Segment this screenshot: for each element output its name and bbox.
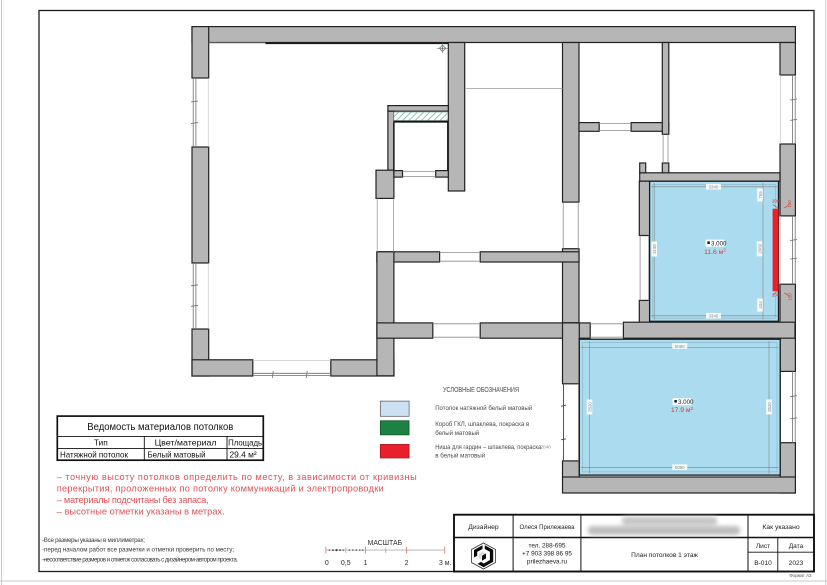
svg-text:3340: 3340	[709, 185, 719, 190]
svg-text:УСЛОВНЫЕ ОБОЗНАЧЕНИЯ: УСЛОВНЫЕ ОБОЗНАЧЕНИЯ	[443, 387, 519, 394]
svg-text:3520: 3520	[767, 402, 772, 412]
svg-text:Цвет/материал: Цвет/материал	[155, 438, 217, 448]
svg-text:Площадь: Площадь	[228, 438, 263, 448]
svg-text:200: 200	[772, 199, 780, 204]
svg-text:Потолок натяжной белый матовый: Потолок натяжной белый матовый	[435, 404, 532, 412]
svg-text:Лист: Лист	[756, 543, 770, 550]
svg-text:3340: 3340	[709, 314, 719, 319]
svg-text:-несоответствие размеров и отм: -несоответствие размеров и отметок согла…	[42, 556, 238, 563]
svg-text:2060: 2060	[757, 243, 762, 253]
svg-text:Тип: Тип	[94, 438, 108, 448]
svg-text:+7 903 398 86 95: +7 903 398 86 95	[522, 551, 572, 558]
svg-text:5090: 5090	[675, 344, 685, 349]
svg-text:– материалы подсчитаны без зап: – материалы подсчитаны без запаса,	[57, 495, 209, 505]
svg-text:434: 434	[758, 301, 763, 309]
svg-text:тел. 288-695: тел. 288-695	[529, 543, 566, 550]
svg-text:Как указано: Как указано	[762, 524, 799, 531]
svg-text:План потолков 1 этаж: План потолков 1 этаж	[631, 552, 698, 559]
svg-text:150: 150	[787, 200, 792, 208]
svg-text:0,5: 0,5	[341, 560, 351, 567]
svg-text:5090: 5090	[675, 465, 685, 470]
svg-text:Олеся Прилежаева: Олеся Прилежаева	[520, 524, 575, 531]
svg-text:17.9 м2: 17.9 м2	[671, 406, 694, 414]
svg-text:МАСШТАБ: МАСШТАБ	[368, 538, 403, 547]
svg-text:3520: 3520	[587, 402, 592, 412]
svg-text:Дата: Дата	[789, 543, 804, 550]
svg-text:Натяжной потолок: Натяжной потолок	[60, 450, 128, 460]
svg-text:В-010: В-010	[754, 560, 772, 567]
svg-text:200: 200	[772, 293, 780, 298]
svg-text:Формат А3: Формат А3	[789, 573, 812, 578]
svg-text:765: 765	[758, 191, 763, 199]
svg-text:29.4 м²: 29.4 м²	[230, 450, 257, 460]
svg-text:3190: 3190	[652, 244, 657, 254]
svg-text:в белый матовый: в белый матовый	[435, 451, 485, 459]
svg-text:3 м.: 3 м.	[439, 560, 452, 567]
svg-text:– высотные отметки указаны в м: – высотные отметки указаны в метрах.	[57, 507, 225, 517]
svg-text:Белый матовый: Белый матовый	[148, 450, 206, 460]
svg-text:150: 150	[787, 293, 792, 301]
svg-text:Ведомость материалов потолков: Ведомость материалов потолков	[87, 422, 233, 433]
svg-text:3.000: 3.000	[711, 241, 727, 248]
svg-text:2: 2	[405, 560, 409, 567]
svg-text:2023: 2023	[789, 560, 804, 567]
svg-text:Ниша для гардин – шпаклева, по: Ниша для гардин – шпаклева, покраска	[435, 444, 541, 451]
svg-text:prilezhaeva.ru: prilezhaeva.ru	[527, 559, 568, 566]
svg-text:перекрытия, проложенных по пот: перекрытия, проложенных по потолку комму…	[57, 484, 384, 494]
svg-text:Короб ГКЛ, шпаклева, покраска: Короб ГКЛ, шпаклева, покраска в	[435, 420, 530, 428]
svg-text:белый матовый: белый матовый	[435, 429, 479, 437]
svg-text:– точную высоту потолков опред: – точную высоту потолков определить по м…	[57, 472, 417, 482]
svg-text:Дизайнер: Дизайнер	[468, 523, 499, 531]
svg-text:-Все размеры указаны в миллиме: -Все размеры указаны в миллиметрах;	[42, 537, 145, 544]
svg-text:-перед началом работ все разме: -перед началом работ все разметки и отме…	[42, 547, 234, 554]
svg-text:2040: 2040	[541, 445, 552, 450]
svg-text:1: 1	[363, 560, 367, 567]
svg-text:0: 0	[325, 560, 329, 567]
svg-text:11.6 м2: 11.6 м2	[704, 248, 726, 256]
